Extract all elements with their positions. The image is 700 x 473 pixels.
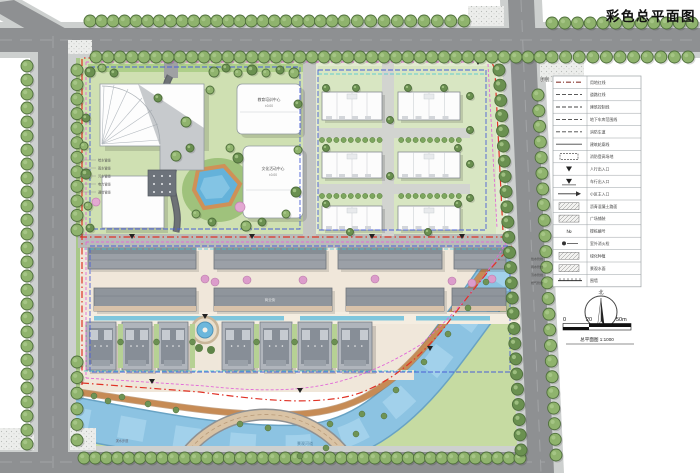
utility-label-left: 污水管线 xyxy=(98,173,112,178)
legend-row-label: 广场铺装 xyxy=(590,216,606,221)
utility-label-right: 雨水管线 xyxy=(531,264,543,269)
scale-tick-50: 50m xyxy=(616,317,627,323)
fountain-plaza xyxy=(192,317,218,343)
north-label: 北 xyxy=(598,289,603,296)
legend-row-label: 围墙 xyxy=(590,278,598,283)
legend-row-label: 楼栋编号 xyxy=(590,229,606,234)
scale-tick-20: 20 xyxy=(586,317,592,323)
utility-label-right: 燃气管线 xyxy=(531,280,543,285)
utility-label-right: 给水管线 xyxy=(531,256,543,261)
culture-center-elev: ±0.00 xyxy=(269,173,277,177)
site-plan-canvas: 彩色总平面图 xyxy=(0,0,700,473)
legend-row-label: 消防登高场地 xyxy=(590,154,613,159)
legend-row-label: 用地红线 xyxy=(590,80,606,85)
svg-text:№: № xyxy=(566,229,571,235)
scale-tick-0: 0 xyxy=(563,317,566,323)
utility-label-left: 通信管线 xyxy=(98,189,112,194)
legend-row-label: 建筑轮廓线 xyxy=(590,142,610,147)
legend-row-label: 道路红线 xyxy=(590,92,606,97)
utility-label-left: 雨水管线 xyxy=(98,165,112,170)
training-center-elev: ±0.00 xyxy=(265,104,273,108)
legend-row-label: 建筑控制线 xyxy=(590,105,610,110)
scale-caption: 总平面图 1:1000 xyxy=(580,336,614,343)
legend-row-label: 绿化种植 xyxy=(590,253,606,258)
legend-row-label: 室外消火栓 xyxy=(590,241,610,246)
legend-table: 用地红线道路红线建筑控制线地下车库范围线消防车道建筑轮廓线消防登高场地人行出入口… xyxy=(553,76,641,287)
training-center-label: 教育培训中心 xyxy=(258,97,281,102)
office-building xyxy=(102,170,176,233)
culture-center-building xyxy=(243,146,307,222)
waterfront-label: 滨水步道 xyxy=(116,438,130,443)
culture-center-label: 文化活动中心 xyxy=(262,166,285,171)
utility-label-right: 污水管线 xyxy=(531,272,543,277)
utility-label-left: 给水管线 xyxy=(98,157,112,162)
legend-row-label: 车行出入口 xyxy=(590,179,610,184)
legend-row-label: 地下车库范围线 xyxy=(590,117,617,122)
commercial-street-label: 商业街 xyxy=(265,297,276,302)
legend-row-label: 沥青混凝土路面 xyxy=(590,204,617,209)
page-title: 彩色总平面图 xyxy=(606,5,696,25)
legend-row-label: 景观水面 xyxy=(590,266,606,271)
legend-row-label: 人行出入口 xyxy=(590,167,610,172)
utility-label-left: 电力管线 xyxy=(98,181,112,186)
site-plan-drawing: 教育培训中心 ±0.00 文化活动中心 ±0.00 商业街 景观河道 滨水步道 … xyxy=(0,0,700,473)
legend-row-label: 小区主入口 xyxy=(590,191,610,196)
training-center-building xyxy=(237,84,305,138)
river-label: 景观河道 xyxy=(297,440,313,446)
legend-row-label: 消防车道 xyxy=(590,129,606,134)
legend-title: 图例 xyxy=(540,76,549,83)
